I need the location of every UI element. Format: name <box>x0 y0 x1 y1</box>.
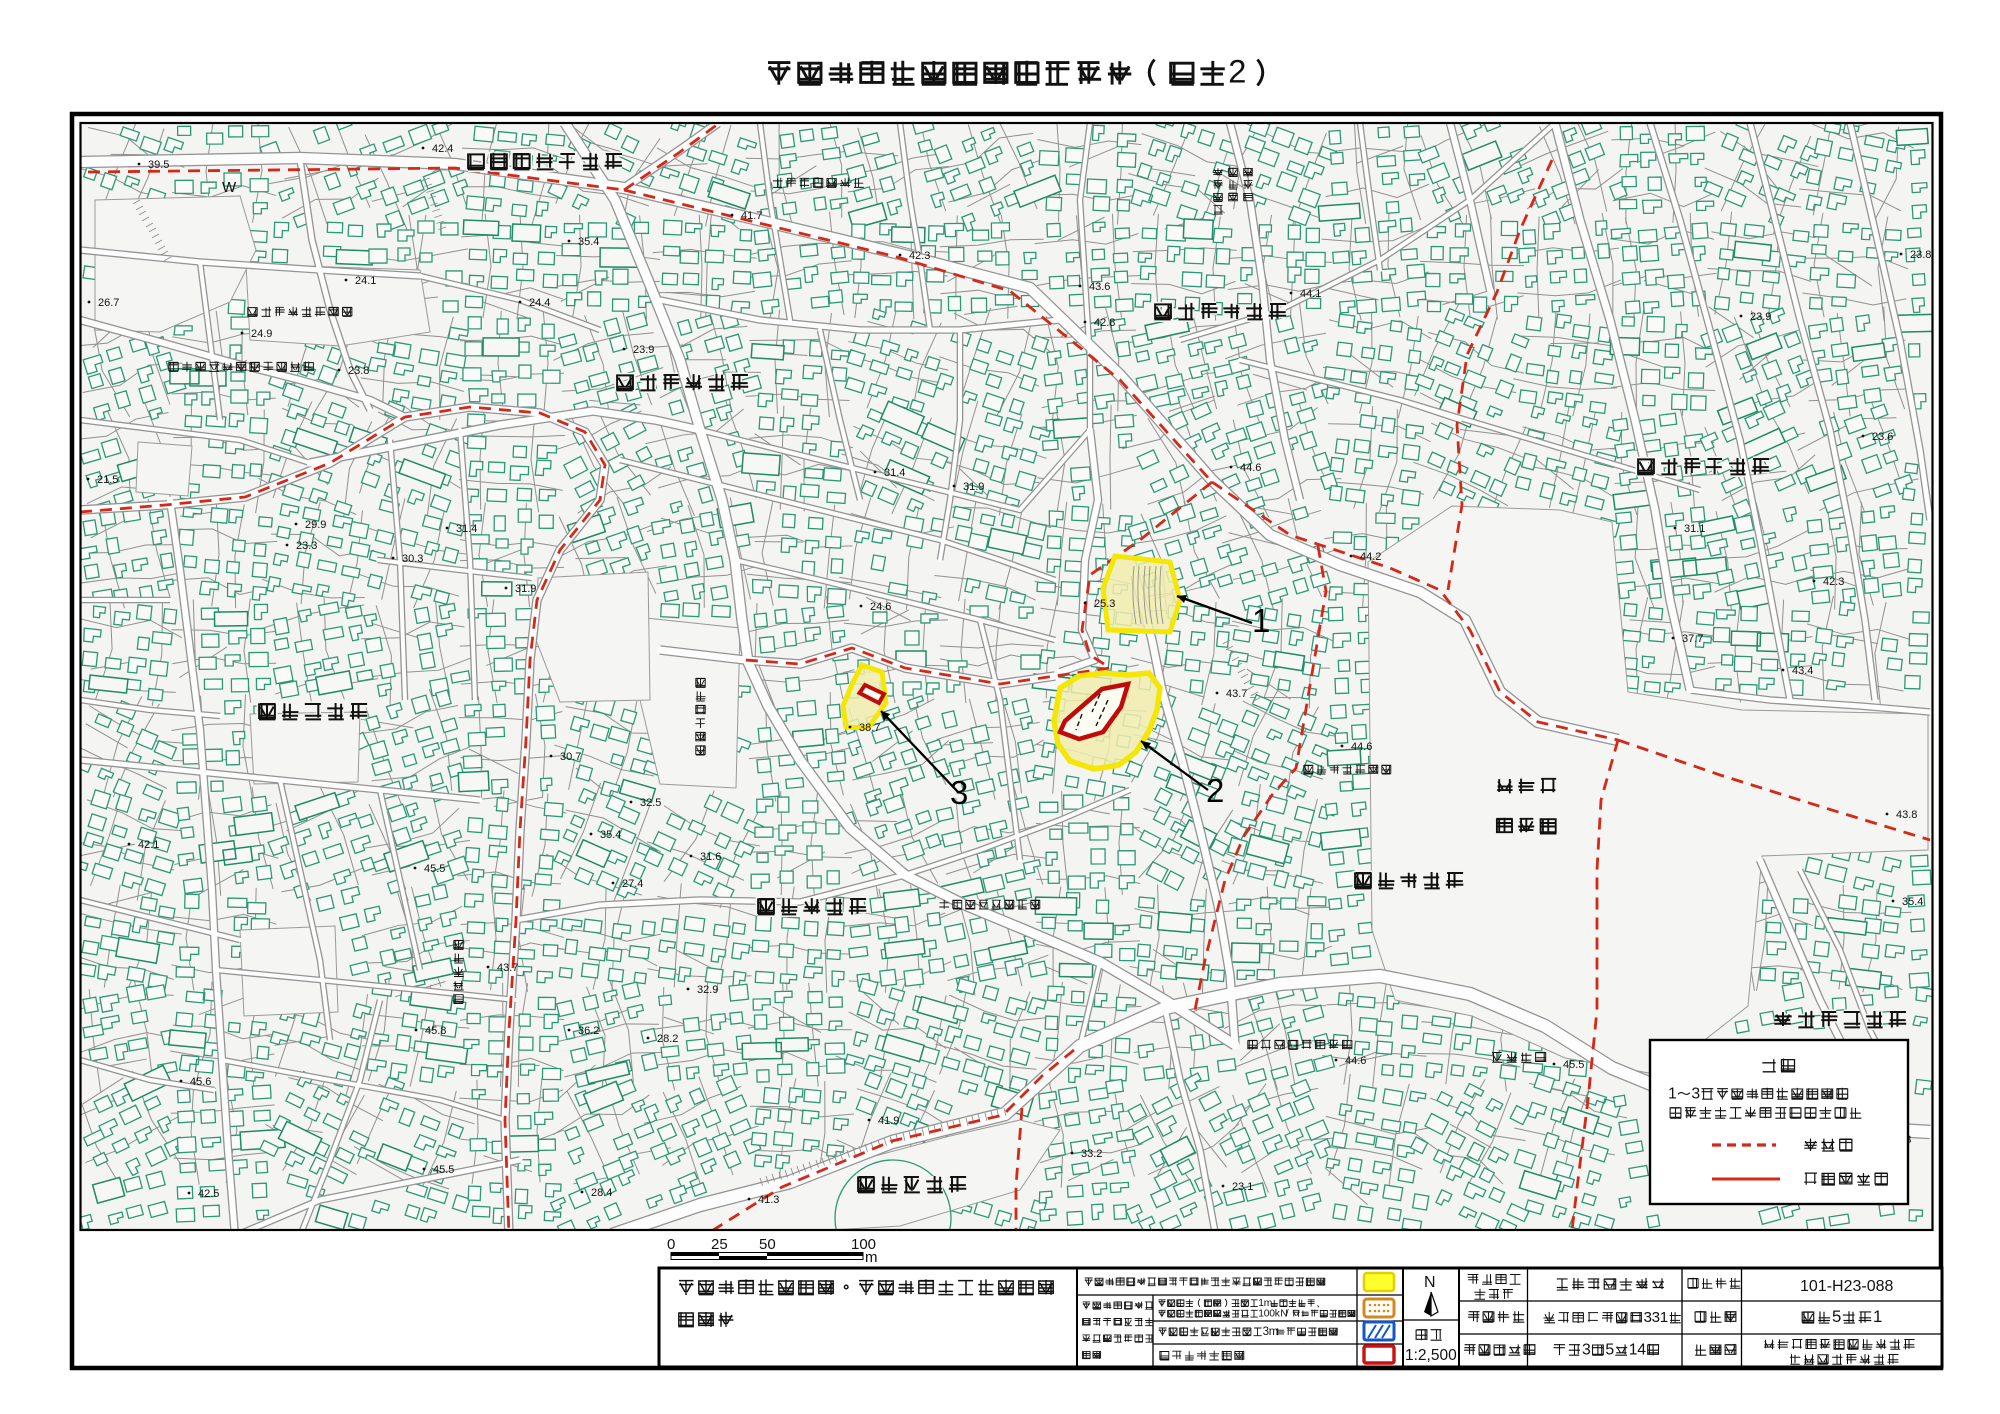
svg-text:31.9: 31.9 <box>515 583 536 595</box>
svg-text:50: 50 <box>759 1236 776 1253</box>
svg-text:23.1: 23.1 <box>1232 1181 1253 1193</box>
svg-text:43.7: 43.7 <box>1226 688 1247 700</box>
svg-text:29.9: 29.9 <box>305 519 326 531</box>
svg-text:26.7: 26.7 <box>98 297 119 309</box>
svg-text:42.3: 42.3 <box>909 250 930 262</box>
svg-text:24.9: 24.9 <box>251 328 272 340</box>
svg-text:45.6: 45.6 <box>190 1076 211 1088</box>
svg-text:5: 5 <box>1832 1307 1841 1326</box>
svg-text:45.5: 45.5 <box>1563 1059 1584 1071</box>
svg-text:1:2,500: 1:2,500 <box>1405 1347 1457 1364</box>
svg-text:35.4: 35.4 <box>600 829 621 841</box>
svg-text:41.7: 41.7 <box>741 210 762 222</box>
svg-text:39.5: 39.5 <box>148 159 169 171</box>
svg-text:N: N <box>1424 1274 1436 1291</box>
svg-text:43.8: 43.8 <box>1896 809 1917 821</box>
svg-text:43.6: 43.6 <box>1089 281 1110 293</box>
svg-text:2: 2 <box>1206 772 1224 809</box>
svg-text:42.4: 42.4 <box>432 143 453 155</box>
svg-text:32.9: 32.9 <box>697 984 718 996</box>
svg-text:44.6: 44.6 <box>1345 1055 1366 1067</box>
svg-text:35.4: 35.4 <box>1902 896 1923 908</box>
svg-text:25: 25 <box>711 1236 728 1253</box>
svg-text:42.8: 42.8 <box>1094 317 1115 329</box>
svg-text:36.2: 36.2 <box>578 1025 599 1037</box>
svg-text:45.5: 45.5 <box>433 1164 454 1176</box>
svg-text:W: W <box>222 179 237 196</box>
svg-text:38.7: 38.7 <box>859 722 880 734</box>
svg-text:44.6: 44.6 <box>1351 741 1372 753</box>
svg-text:28.4: 28.4 <box>591 1187 612 1199</box>
svg-text:3: 3 <box>1691 1085 1700 1102</box>
svg-text:1: 1 <box>1668 1085 1677 1102</box>
svg-text:33.2: 33.2 <box>1081 1148 1102 1160</box>
svg-text:43.7: 43.7 <box>497 962 518 974</box>
svg-text:35.4: 35.4 <box>578 236 599 248</box>
svg-text:23.9: 23.9 <box>1750 311 1771 323</box>
svg-text:101-H23-088: 101-H23-088 <box>1800 1278 1894 1295</box>
svg-text:23.8: 23.8 <box>1910 249 1931 261</box>
svg-text:31.9: 31.9 <box>963 481 984 493</box>
svg-text:4: 4 <box>1637 1341 1646 1358</box>
svg-text:42.1: 42.1 <box>138 839 159 851</box>
svg-text:3: 3 <box>950 774 968 811</box>
svg-text:44.2: 44.2 <box>1360 551 1381 563</box>
svg-text:23.9: 23.9 <box>633 344 654 356</box>
svg-text:24.4: 24.4 <box>529 297 550 309</box>
svg-text:43.4: 43.4 <box>1792 665 1813 677</box>
svg-text:21.5: 21.5 <box>97 474 118 486</box>
svg-text:1: 1 <box>1660 1309 1668 1326</box>
svg-text:23.6: 23.6 <box>1872 431 1893 443</box>
svg-text:31.1: 31.1 <box>1684 523 1705 535</box>
svg-text:3: 3 <box>1582 1341 1591 1358</box>
svg-text:0: 0 <box>667 1236 675 1253</box>
svg-text:/: / <box>1286 1309 1289 1320</box>
svg-text:27.4: 27.4 <box>622 878 643 890</box>
svg-text:24.1: 24.1 <box>355 275 376 287</box>
svg-text:m: m <box>1269 1325 1279 1338</box>
svg-text:30.7: 30.7 <box>560 751 581 763</box>
svg-text:37.7: 37.7 <box>1682 633 1703 645</box>
svg-text:44.1: 44.1 <box>1300 288 1321 300</box>
svg-text:24.6: 24.6 <box>870 601 891 613</box>
svg-text:42.5: 42.5 <box>198 1188 219 1200</box>
svg-text:m: m <box>1264 1298 1273 1309</box>
svg-text:1: 1 <box>1252 602 1270 639</box>
svg-text:30.3: 30.3 <box>402 553 423 565</box>
svg-text:23.3: 23.3 <box>296 540 317 552</box>
svg-text:45.8: 45.8 <box>425 1025 446 1037</box>
svg-text:5: 5 <box>1605 1341 1614 1358</box>
svg-text:32.5: 32.5 <box>640 797 661 809</box>
svg-text:44.6: 44.6 <box>1240 462 1261 474</box>
svg-text:25.3: 25.3 <box>1094 598 1115 610</box>
svg-text:45.5: 45.5 <box>424 863 445 875</box>
svg-text:42.3: 42.3 <box>1823 576 1844 588</box>
svg-text:31.6: 31.6 <box>700 851 721 863</box>
svg-text:41.9: 41.9 <box>878 1115 899 1127</box>
svg-text:23.8: 23.8 <box>348 365 369 377</box>
svg-text:28.2: 28.2 <box>657 1033 678 1045</box>
svg-text:m: m <box>865 1249 878 1266</box>
svg-text:31.4: 31.4 <box>884 467 905 479</box>
svg-text:1: 1 <box>1873 1307 1882 1326</box>
svg-text:31.4: 31.4 <box>456 523 477 535</box>
svg-text:41.3: 41.3 <box>758 1194 779 1206</box>
svg-text:2: 2 <box>1228 52 1246 89</box>
